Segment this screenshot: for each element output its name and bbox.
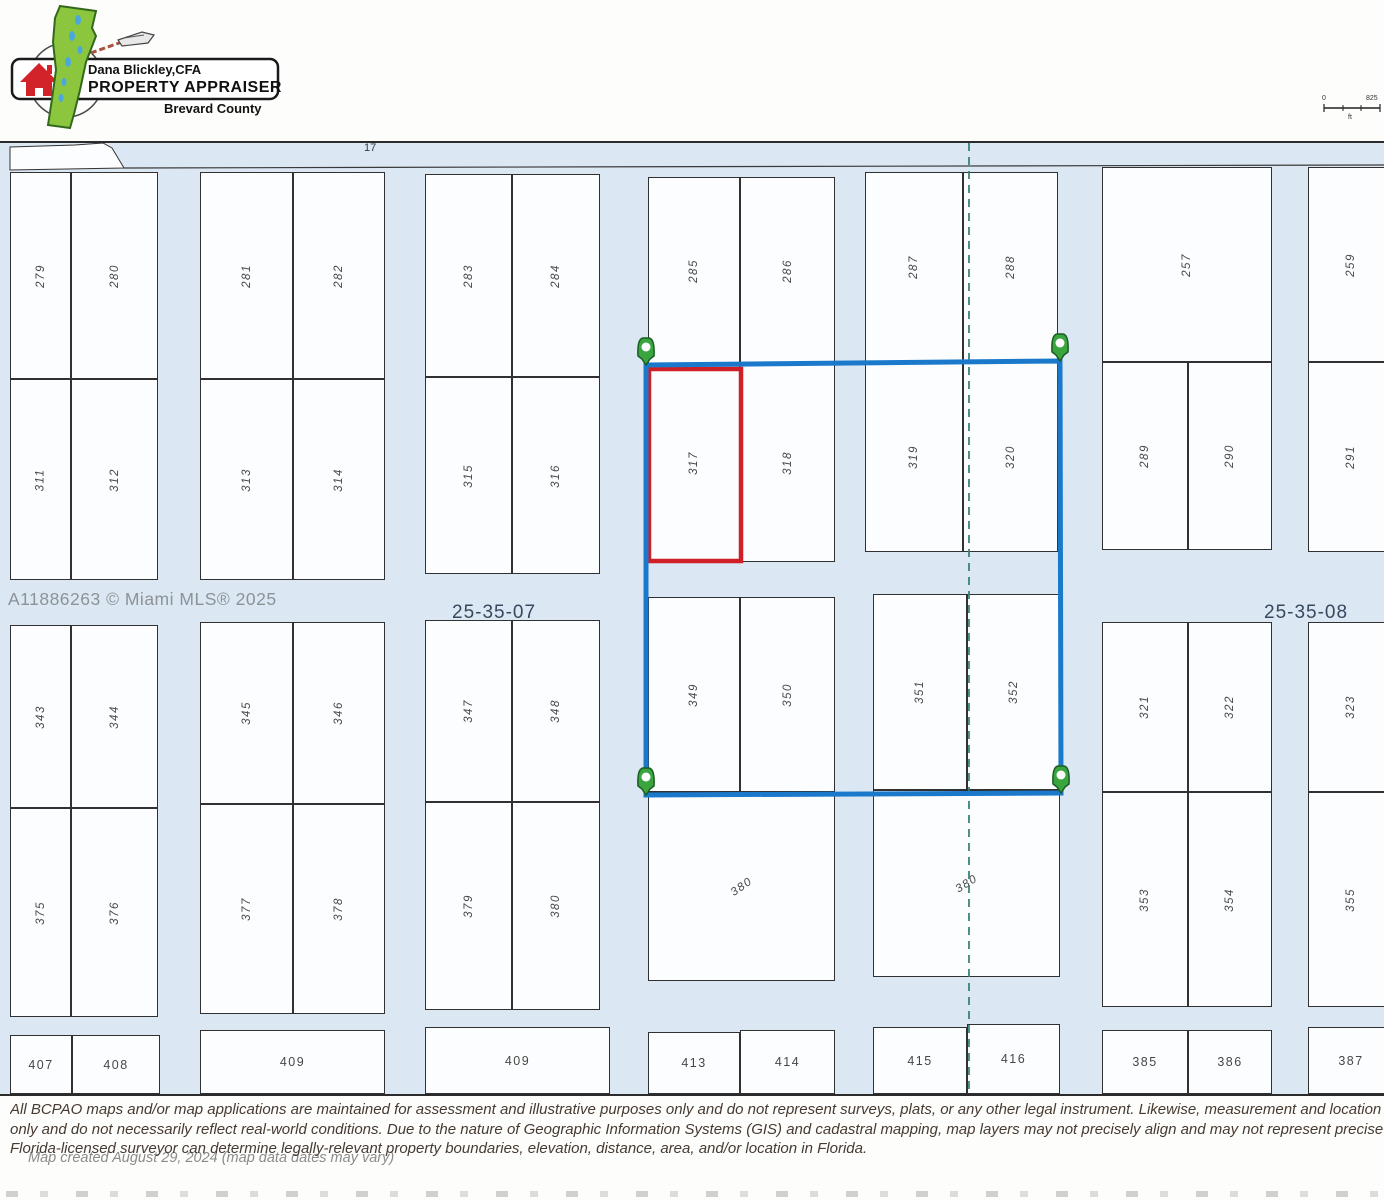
page: 2792802812822832842852862872882572593113… <box>0 0 1384 1200</box>
vertex-pin[interactable] <box>1052 334 1068 361</box>
section-label-left: 25-35-07 <box>452 602 536 624</box>
road-edge-line <box>124 165 1384 168</box>
disclaimer-line: All BCPAO maps and/or map applications a… <box>10 1100 1384 1120</box>
road-notch <box>10 143 124 170</box>
shuttle-icon <box>118 32 154 46</box>
scale-unit: ft <box>1348 114 1352 120</box>
road-number-label: 17 <box>364 142 376 154</box>
property-appraiser-logo: Dana Blickley,CFA PROPERTY APPRAISER Bre… <box>6 2 306 138</box>
scale-distance: 825 <box>1366 95 1378 102</box>
appraiser-name: Dana Blickley,CFA <box>88 62 202 77</box>
selection-polygon <box>646 361 1061 795</box>
appraiser-title: PROPERTY APPRAISER <box>88 79 282 96</box>
highlight-parcel-outline <box>649 369 741 561</box>
disclaimer-line: only and do not necessarily reflect real… <box>10 1120 1384 1140</box>
vertex-pin[interactable] <box>638 338 654 365</box>
map-canvas[interactable]: 2792802812822832842852862872882572593113… <box>0 141 1384 1096</box>
map-overlay <box>0 143 1384 1094</box>
vertex-pin[interactable] <box>638 768 654 795</box>
county-name: Brevard County <box>164 101 262 116</box>
disclaimer-line: Florida-licensed surveyor can determine … <box>10 1139 1384 1159</box>
scale-bar: 0 825 ft <box>1320 90 1384 120</box>
disclaimer: All BCPAO maps and/or map applications a… <box>10 1100 1384 1159</box>
cutoff-text-strip <box>6 1191 1378 1197</box>
mls-watermark: A11886263 © Miami MLS® 2025 <box>8 589 277 610</box>
scale-zero: 0 <box>1322 95 1326 102</box>
section-label-right: 25-35-08 <box>1264 602 1348 624</box>
vertex-pin[interactable] <box>1053 766 1069 793</box>
